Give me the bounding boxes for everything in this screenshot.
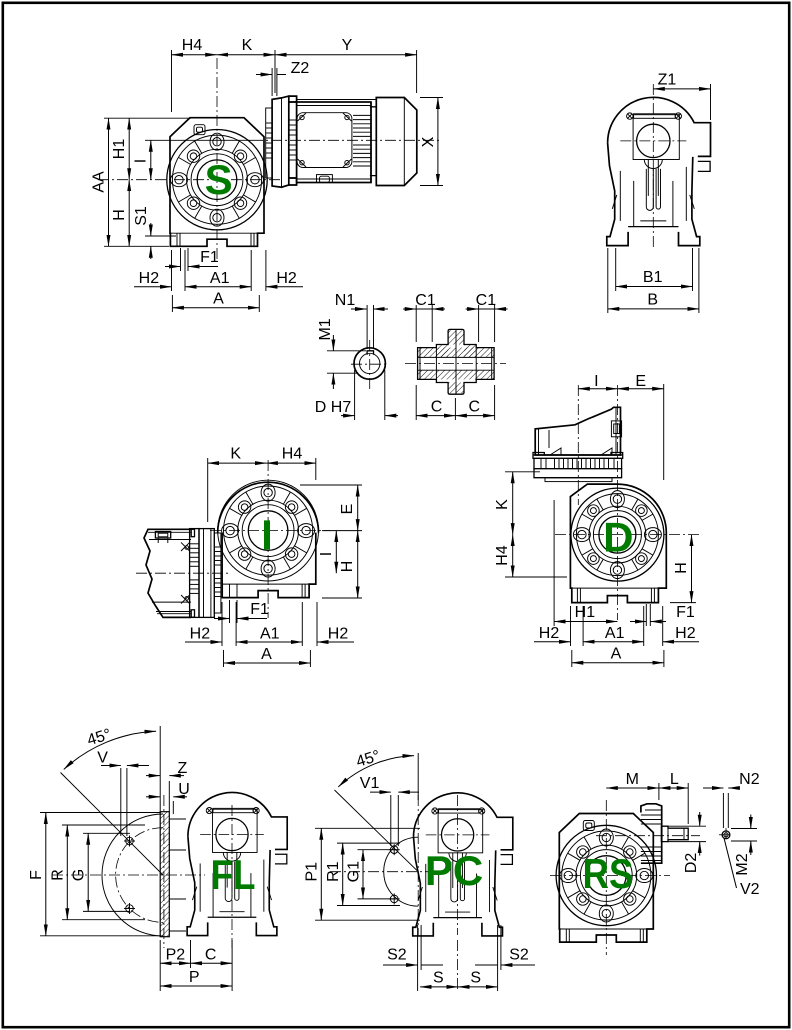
svg-text:A: A xyxy=(261,646,272,663)
svg-text:Z: Z xyxy=(178,760,188,777)
svg-text:H2: H2 xyxy=(675,625,696,642)
svg-text:M1: M1 xyxy=(317,318,334,340)
svg-text:R1: R1 xyxy=(325,861,342,882)
svg-text:AA: AA xyxy=(91,171,108,193)
svg-text:Y: Y xyxy=(342,37,353,54)
svg-text:E: E xyxy=(635,373,646,390)
svg-text:V2: V2 xyxy=(740,881,760,898)
svg-text:S: S xyxy=(205,156,233,203)
svg-text:A1: A1 xyxy=(210,270,230,287)
svg-text:S2: S2 xyxy=(509,947,529,964)
svg-text:H1: H1 xyxy=(111,139,128,160)
svg-text:C: C xyxy=(205,947,217,964)
svg-text:S1: S1 xyxy=(133,206,150,226)
svg-text:C: C xyxy=(431,399,443,416)
svg-text:H1: H1 xyxy=(575,604,596,621)
svg-text:S: S xyxy=(470,970,481,987)
svg-text:D: D xyxy=(603,514,633,561)
svg-text:K: K xyxy=(230,446,241,463)
svg-text:FL: FL xyxy=(211,851,256,898)
svg-text:B1: B1 xyxy=(643,269,663,286)
svg-text:A: A xyxy=(213,291,224,308)
svg-text:G1: G1 xyxy=(345,861,362,882)
svg-text:B: B xyxy=(647,292,658,309)
svg-text:V1: V1 xyxy=(360,775,380,792)
svg-text:X: X xyxy=(420,136,437,147)
svg-text:F1: F1 xyxy=(200,249,219,266)
svg-text:H4: H4 xyxy=(494,545,511,566)
svg-text:D2: D2 xyxy=(683,853,700,874)
svg-text:H4: H4 xyxy=(282,446,303,463)
svg-text:F1: F1 xyxy=(676,604,695,621)
svg-text:A: A xyxy=(611,646,622,663)
svg-text:M: M xyxy=(626,771,639,788)
svg-text:Z2: Z2 xyxy=(291,60,310,77)
svg-text:PC: PC xyxy=(425,847,483,894)
svg-text:U: U xyxy=(178,781,190,798)
svg-text:A1: A1 xyxy=(260,626,280,643)
svg-text:C1: C1 xyxy=(476,292,497,309)
svg-text:R: R xyxy=(50,869,67,881)
svg-text:H2: H2 xyxy=(328,626,349,643)
svg-text:D H7: D H7 xyxy=(315,399,352,416)
svg-text:K: K xyxy=(494,499,511,510)
svg-text:F1: F1 xyxy=(250,601,269,618)
svg-text:K: K xyxy=(242,37,253,54)
svg-text:S: S xyxy=(433,970,444,987)
svg-text:C: C xyxy=(469,399,481,416)
svg-text:A1: A1 xyxy=(605,625,625,642)
svg-text:I: I xyxy=(318,552,335,556)
svg-text:E: E xyxy=(339,504,356,515)
svg-text:N2: N2 xyxy=(739,771,760,788)
svg-text:M2: M2 xyxy=(734,853,751,875)
svg-text:H: H xyxy=(111,209,128,221)
svg-text:F: F xyxy=(28,870,45,880)
svg-text:G: G xyxy=(70,869,87,881)
svg-text:C1: C1 xyxy=(415,292,436,309)
svg-text:H2: H2 xyxy=(190,626,211,643)
svg-text:H4: H4 xyxy=(182,37,203,54)
svg-text:V: V xyxy=(97,750,108,767)
svg-text:H2: H2 xyxy=(276,270,297,287)
svg-text:H: H xyxy=(673,562,690,574)
svg-text:RS: RS xyxy=(583,850,634,897)
svg-text:I: I xyxy=(133,159,150,163)
svg-text:P: P xyxy=(189,969,200,986)
svg-text:Z1: Z1 xyxy=(658,72,677,89)
svg-text:N1: N1 xyxy=(335,292,356,309)
svg-text:H2: H2 xyxy=(139,270,160,287)
svg-text:H: H xyxy=(339,561,356,573)
svg-text:P1: P1 xyxy=(304,862,321,882)
svg-text:H2: H2 xyxy=(539,625,560,642)
svg-text:S2: S2 xyxy=(387,947,407,964)
svg-text:P2: P2 xyxy=(166,947,186,964)
svg-text:I: I xyxy=(594,373,598,390)
svg-text:L: L xyxy=(670,771,679,788)
